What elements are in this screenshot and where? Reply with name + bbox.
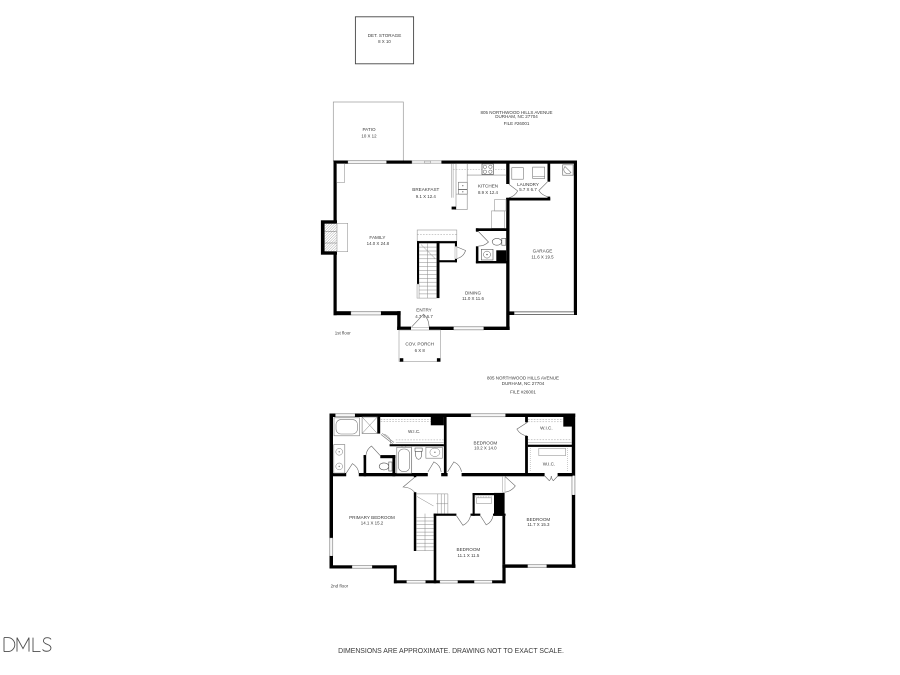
svg-text:14.0 X 24.8: 14.0 X 24.8 xyxy=(367,241,390,246)
svg-text:ENTRY: ENTRY xyxy=(416,307,432,312)
svg-text:1st floor: 1st floor xyxy=(335,330,352,335)
svg-text:FILE #26001: FILE #26001 xyxy=(504,121,530,126)
svg-text:FAMILY: FAMILY xyxy=(369,235,385,240)
svg-text:8.9 X 12.4: 8.9 X 12.4 xyxy=(478,190,499,195)
svg-text:2nd floor: 2nd floor xyxy=(331,584,349,589)
svg-text:BEDROOM: BEDROOM xyxy=(457,547,481,552)
svg-text:GARAGE: GARAGE xyxy=(533,248,553,253)
svg-text:KITCHEN: KITCHEN xyxy=(478,184,498,189)
svg-text:DINING: DINING xyxy=(465,291,482,296)
svg-text:BREAKFAST: BREAKFAST xyxy=(412,187,439,192)
svg-text:6 X 8: 6 X 8 xyxy=(415,348,426,353)
svg-text:DURHAM, NC 27704: DURHAM, NC 27704 xyxy=(495,114,538,119)
svg-text:11.7 X 15.3: 11.7 X 15.3 xyxy=(527,522,550,527)
svg-text:DET. STORAGE: DET. STORAGE xyxy=(368,33,402,38)
svg-text:11.0 X 11.6: 11.0 X 11.6 xyxy=(462,296,484,301)
svg-text:DURHAM, NC 27704: DURHAM, NC 27704 xyxy=(502,381,545,386)
svg-text:11.1 X 11.5: 11.1 X 11.5 xyxy=(457,553,479,558)
svg-text:W.I.C.: W.I.C. xyxy=(540,426,553,431)
svg-text:11.6 X 19.5: 11.6 X 19.5 xyxy=(531,254,554,259)
svg-text:W.I.C.: W.I.C. xyxy=(543,461,556,466)
svg-text:DIMENSIONS ARE APPROXIMATE. DR: DIMENSIONS ARE APPROXIMATE. DRAWING NOT … xyxy=(338,648,564,655)
svg-text:9.1 X 12.4: 9.1 X 12.4 xyxy=(416,194,437,199)
svg-text:14.1 X 15.2: 14.1 X 15.2 xyxy=(361,520,384,525)
svg-text:10 X 12: 10 X 12 xyxy=(361,133,377,138)
svg-text:8 X 10: 8 X 10 xyxy=(378,39,391,44)
svg-text:5.7 X 6.7: 5.7 X 6.7 xyxy=(519,187,537,192)
svg-text:4.7 X 6.7: 4.7 X 6.7 xyxy=(415,314,433,319)
svg-text:W.I.C.: W.I.C. xyxy=(408,429,421,434)
svg-text:FILE #26001: FILE #26001 xyxy=(510,389,536,394)
svg-text:COV. PORCH: COV. PORCH xyxy=(405,341,434,346)
svg-text:PATIO: PATIO xyxy=(362,127,376,132)
svg-text:805 NORTHWOOD HILLS AVENUE: 805 NORTHWOOD HILLS AVENUE xyxy=(487,376,559,381)
svg-text:10.2 X 14.0: 10.2 X 14.0 xyxy=(474,446,497,451)
